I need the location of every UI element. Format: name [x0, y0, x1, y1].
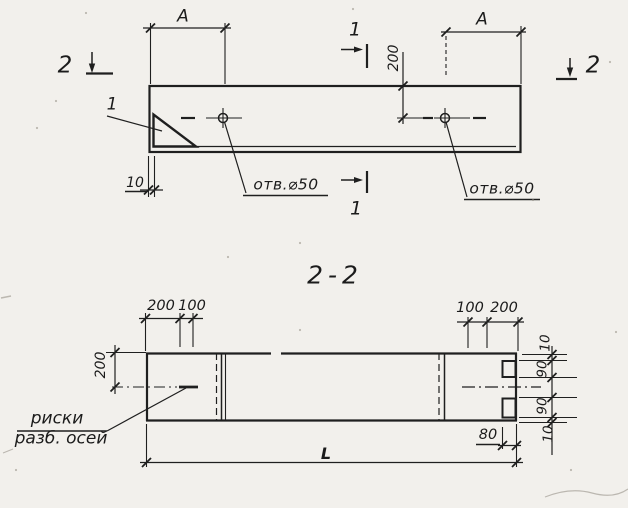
dim-100-top-left-label: 100	[178, 299, 206, 314]
dim-200-vertical-label: 200	[387, 45, 401, 72]
section-mark-2-left	[86, 52, 113, 74]
dim-a-left-lines	[143, 23, 231, 84]
dim-right-90-top-label: 90	[536, 360, 550, 377]
dim-100-top-right-label: 100	[456, 301, 484, 316]
section-mark-1-top	[341, 44, 367, 68]
section-view-title: 2-2	[307, 263, 363, 288]
top-view-beam-outline	[150, 86, 521, 152]
dim-200-top-right-label: 200	[490, 301, 518, 316]
dim-200-top-left-label: 200	[147, 299, 175, 314]
section-mark-1-bottom	[341, 171, 367, 193]
section-mark-2-right	[556, 58, 577, 79]
dim-right-10-bottom-label: 10	[542, 425, 556, 442]
dim-right-90-bottom-label: 90	[536, 397, 550, 414]
axis-note-line2: разб. осей	[15, 431, 108, 448]
dim-a-right-lines	[441, 26, 526, 84]
detail-1-label: 1	[107, 97, 118, 114]
dim-length-lines	[140, 424, 523, 467]
section-2-right-label: 2	[586, 55, 601, 78]
dim-a-right-label: A	[476, 12, 488, 29]
dim-200-left-label: 200	[94, 352, 108, 379]
axis-marks-right	[439, 353, 445, 421]
section-2-left-label: 2	[58, 55, 73, 78]
dim-length-label: L	[321, 446, 331, 462]
section-1-top-label: 1	[349, 21, 361, 40]
hole-label-left: отв.⌀50	[253, 177, 318, 193]
axis-note-line1: риски	[31, 411, 84, 428]
dim-80-label: 80	[479, 428, 497, 443]
dimension-ticks	[111, 24, 557, 468]
dim-a-left-label: A	[177, 9, 189, 26]
dim-10-label: 10	[126, 176, 144, 190]
section-1-bottom-label: 1	[350, 200, 362, 219]
dim-right-10-top-label: 10	[539, 334, 553, 351]
section-view-beam-outline	[146, 353, 517, 421]
scan-artifacts	[1, 8, 628, 497]
drawing-sheet: A A 2 2 1 1 1 200 10 отв.⌀50 отв.⌀50 2-2…	[0, 0, 628, 508]
axis-marks-left	[217, 353, 226, 421]
hole-label-right: отв.⌀50	[469, 181, 534, 197]
